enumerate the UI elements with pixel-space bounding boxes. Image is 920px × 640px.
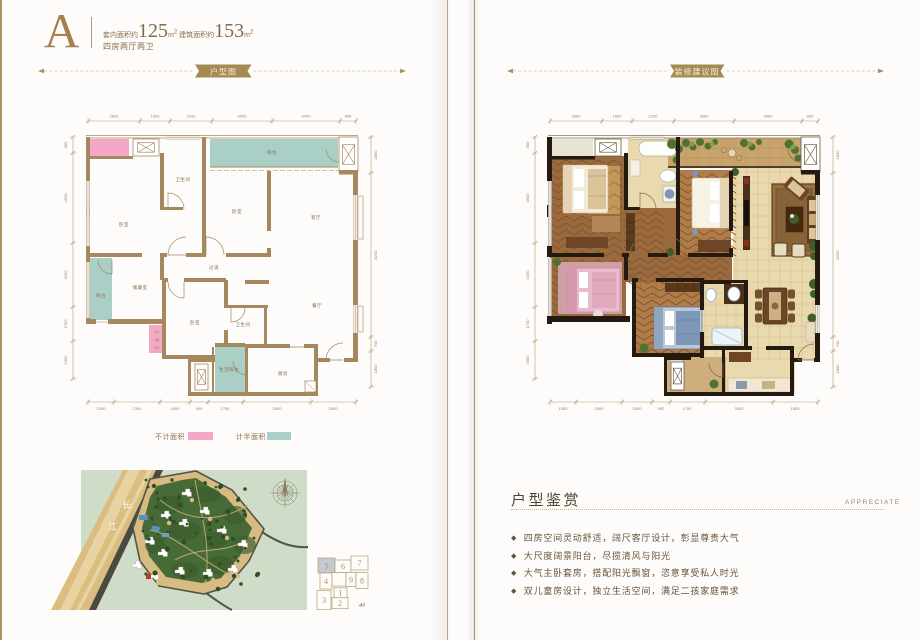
svg-text:2600: 2600 (572, 114, 582, 119)
svg-text:3000: 3000 (700, 114, 710, 119)
svg-text:8200: 8200 (835, 250, 840, 260)
svg-text:1750: 1750 (683, 406, 693, 411)
svg-text:3200: 3200 (525, 270, 530, 280)
svg-text:1800: 1800 (835, 150, 840, 160)
svg-text:1800: 1800 (835, 364, 840, 374)
svg-text:2100: 2100 (649, 114, 659, 119)
svg-text:1300: 1300 (559, 406, 569, 411)
svg-text:1500: 1500 (633, 406, 643, 411)
svg-text:800: 800 (807, 114, 814, 119)
svg-text:1500: 1500 (613, 114, 623, 119)
svg-text:3400: 3400 (764, 114, 774, 119)
svg-text:700: 700 (835, 340, 840, 347)
svg-text:1800: 1800 (791, 406, 801, 411)
svg-text:4500: 4500 (525, 193, 530, 203)
svg-text:3400: 3400 (735, 406, 745, 411)
svg-text:900: 900 (658, 406, 665, 411)
svg-text:800: 800 (525, 141, 530, 148)
svg-text:1900: 1900 (525, 355, 530, 365)
svg-text:2300: 2300 (595, 406, 605, 411)
svg-text:1700: 1700 (525, 319, 530, 329)
